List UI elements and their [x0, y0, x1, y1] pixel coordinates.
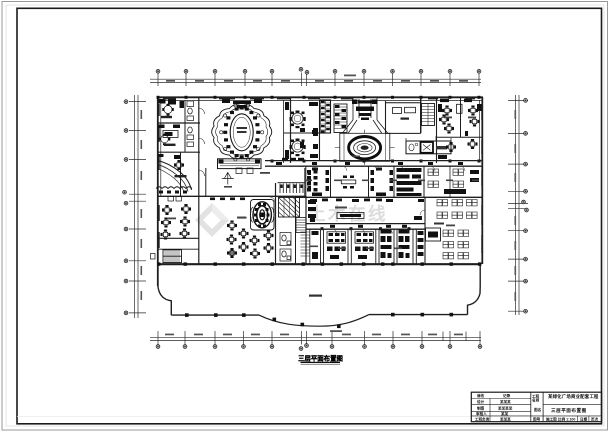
svg-text:审核人: 审核人 [476, 411, 487, 416]
svg-text:工程负责: 工程负责 [475, 416, 490, 421]
svg-text:某绿化广场商业配套工程: 某绿化广场商业配套工程 [548, 393, 599, 400]
svg-text:某某: 某某 [500, 411, 509, 416]
svg-text:记录: 记录 [503, 393, 511, 398]
svg-text:某某某: 某某某 [499, 399, 511, 404]
svg-text:制图: 制图 [477, 406, 485, 411]
svg-text:修改: 修改 [476, 393, 485, 398]
svg-text:页次: 页次 [591, 416, 599, 421]
svg-text:图号: 图号 [533, 416, 541, 421]
svg-text:名称: 名称 [532, 398, 540, 403]
svg-text:某某某: 某某某 [499, 416, 511, 421]
svg-text:日期: 日期 [580, 416, 588, 421]
svg-text:施工图: 施工图 [546, 416, 557, 421]
svg-text:三层平面布置图: 三层平面布置图 [551, 407, 587, 414]
svg-text:三层平面布置图: 三层平面布置图 [298, 354, 343, 363]
svg-text:比例 1:100: 比例 1:100 [558, 416, 575, 421]
svg-text:设计: 设计 [477, 399, 485, 404]
svg-text:图名: 图名 [534, 407, 542, 412]
svg-text:某某某某: 某某某某 [497, 406, 513, 411]
